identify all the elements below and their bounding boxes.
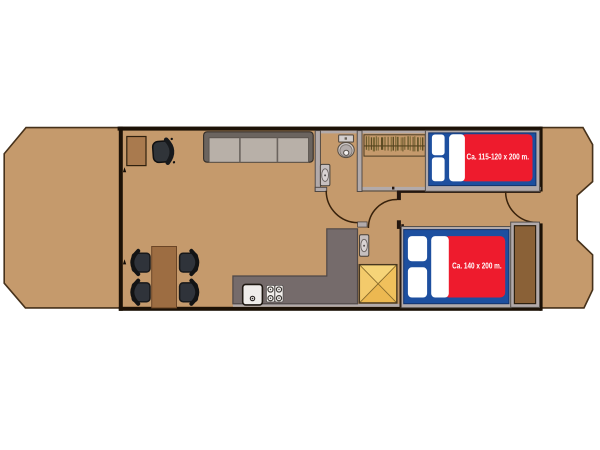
svg-text:Ca. 115-120 x 200 m.: Ca. 115-120 x 200 m. xyxy=(467,153,530,162)
svg-text:Ca. 140 x 200 m.: Ca. 140 x 200 m. xyxy=(452,262,502,271)
